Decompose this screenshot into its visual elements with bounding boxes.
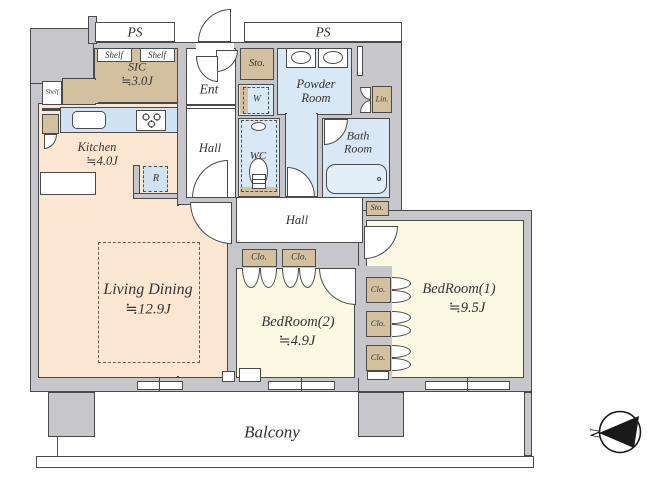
wc-tank-icon: [251, 122, 266, 131]
label-bedroom1-size: ≒9.5J: [449, 300, 486, 316]
label-clo-2: Clo.: [371, 319, 385, 329]
label-sic: SIC: [128, 60, 146, 73]
label-shelf-left: Shelf: [46, 88, 59, 95]
bifold-door-bed1-3: [392, 345, 411, 371]
compass: N: [586, 404, 648, 462]
label-linen: Lin.: [376, 96, 389, 105]
label-ps-left: PS: [128, 24, 143, 39]
kitchen-cabinet: [42, 114, 59, 134]
label-bedroom2: BedRoom(2): [261, 314, 334, 330]
bifold-door-bed2-b: [282, 268, 316, 288]
duct-slit: [357, 46, 363, 76]
label-ps-right: PS: [316, 24, 331, 39]
bifold-door-bed1-2: [392, 311, 411, 337]
label-bedroom2-size: ≒4.9J: [279, 333, 316, 349]
powder-seam-patch: [287, 111, 316, 117]
label-bedroom1: BedRoom(1): [422, 281, 495, 297]
label-living-size: ≒12.9J: [125, 302, 170, 319]
label-living-dining: Living Dining: [103, 281, 192, 299]
label-sto-top: Sto.: [249, 58, 265, 70]
label-clo-b: Clo.: [291, 253, 307, 264]
toilet-seat-icon: [252, 174, 266, 189]
label-balcony: Balcony: [244, 422, 300, 441]
sic-seam-patch: [92, 80, 98, 103]
label-shelf-a: Shelf: [105, 50, 123, 60]
label-ent: Ent: [200, 81, 219, 96]
label-hall-mid: Hall: [286, 213, 308, 227]
balcony-pillar-middle: [358, 392, 404, 437]
window-bedroom1-tick: [467, 378, 468, 392]
label-sto-mid: Sto.: [371, 203, 384, 213]
label-bath-room: Bath Room: [332, 130, 384, 157]
wall-pillar-topleft: [30, 28, 94, 84]
balcony-rail: [36, 456, 534, 468]
bathtub-drain-icon: [377, 177, 381, 181]
label-powder-room: Powder Room: [284, 77, 348, 105]
balcony-line-left: [57, 437, 58, 456]
wall-slit-a: [222, 371, 235, 382]
floor-plan: PS PS Shelf Shelf Shelf SIC ≒3.0J Ent St…: [0, 0, 662, 484]
sink-basin-left-icon: [291, 51, 311, 64]
wall-slit-c: [367, 371, 389, 380]
compass-north-letter: N: [587, 427, 603, 439]
closet-sic-ext: [62, 78, 96, 105]
balcony-pillar-left: [48, 392, 95, 437]
label-shelf-b: Shelf: [148, 50, 166, 60]
label-wc: WC: [250, 150, 267, 162]
stove-icon: [136, 110, 166, 131]
label-clo-1: Clo.: [371, 285, 385, 295]
sink-basin-right-icon: [323, 51, 343, 64]
toilet-line2: [253, 183, 265, 184]
window-living-tick: [159, 378, 160, 392]
entrance-opening: [196, 43, 234, 50]
balcony-wall-right: [524, 392, 532, 456]
toilet-line1: [253, 179, 265, 180]
wall-slit-b: [239, 368, 261, 382]
label-washer: W: [253, 95, 261, 106]
kitchen-island: [40, 172, 96, 195]
label-clo-a: Clo.: [251, 253, 267, 264]
kitchen-sink-icon: [72, 111, 106, 129]
door-arc-entrance-out: [198, 9, 231, 42]
entry-step-line2: [186, 108, 236, 109]
fridge-wall-h: [133, 193, 178, 199]
entry-step-line: [186, 104, 236, 106]
label-sic-size: ≒3.0J: [121, 74, 153, 88]
counter-edge-bar: [42, 108, 60, 111]
bifold-door-bed2-a: [242, 268, 277, 288]
label-kitchen-size: ≒4.0J: [86, 154, 118, 168]
bifold-door-bed1-1: [392, 277, 411, 303]
label-clo-3: Clo.: [371, 353, 385, 363]
label-hall-top: Hall: [199, 141, 221, 155]
label-kitchen: Kitchen: [78, 140, 117, 154]
window-bedroom2-tick: [301, 378, 302, 392]
label-fridge: R: [153, 173, 159, 185]
